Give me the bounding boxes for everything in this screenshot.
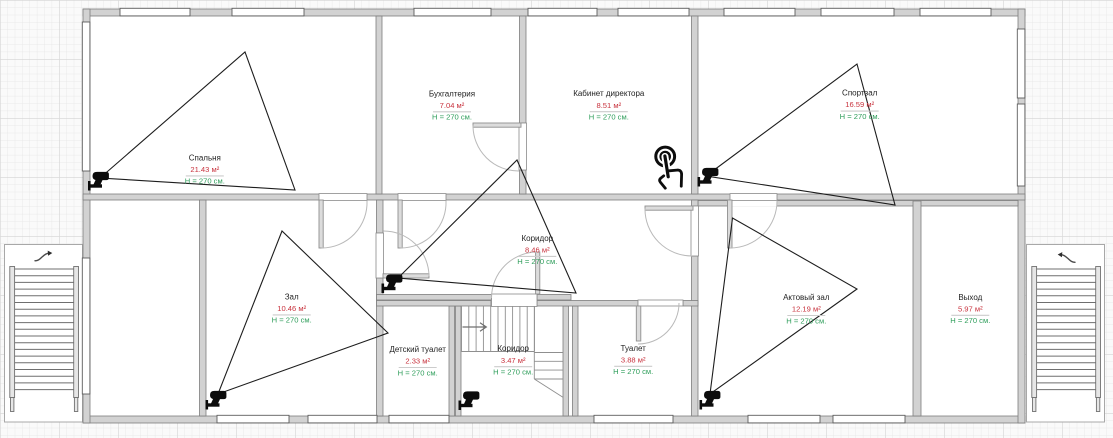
svg-text:10.46 м²: 10.46 м² (277, 304, 306, 313)
svg-text:Детский туалет: Детский туалет (389, 345, 446, 354)
svg-text:H = 270 см.: H = 270 см. (613, 367, 653, 376)
svg-text:5.97 м²: 5.97 м² (958, 304, 983, 313)
svg-text:16.59 м²: 16.59 м² (845, 100, 874, 109)
svg-text:3.88 м²: 3.88 м² (621, 355, 646, 364)
svg-text:H = 270 см.: H = 270 см. (840, 112, 880, 121)
svg-text:Спальня: Спальня (189, 153, 221, 162)
svg-text:Кабинет директора: Кабинет директора (573, 89, 645, 98)
svg-text:H = 270 см.: H = 270 см. (950, 316, 990, 325)
svg-text:Бухгалтерия: Бухгалтерия (429, 89, 475, 98)
svg-text:Коридор: Коридор (497, 344, 529, 353)
svg-text:H = 270 см.: H = 270 см. (432, 113, 472, 122)
svg-text:Спортзал: Спортзал (842, 89, 878, 98)
svg-text:H = 270 см.: H = 270 см. (589, 113, 629, 122)
svg-text:H = 270 см.: H = 270 см. (517, 257, 557, 266)
svg-text:Выход: Выход (958, 293, 982, 302)
svg-text:12.19 м²: 12.19 м² (792, 305, 821, 314)
svg-text:Зал: Зал (285, 292, 299, 301)
svg-text:H = 270 см.: H = 270 см. (786, 316, 826, 325)
svg-text:3.47 м²: 3.47 м² (501, 356, 526, 365)
svg-text:H = 270 см.: H = 270 см. (398, 368, 438, 377)
svg-text:8.46 м²: 8.46 м² (525, 246, 550, 255)
svg-text:21.43 м²: 21.43 м² (190, 165, 219, 174)
svg-text:H = 270 см.: H = 270 см. (493, 368, 533, 377)
svg-text:H = 270 см.: H = 270 см. (272, 316, 312, 325)
svg-text:H = 270 см.: H = 270 см. (185, 177, 225, 186)
svg-text:2.33 м²: 2.33 м² (405, 357, 430, 366)
svg-text:Туалет: Туалет (621, 344, 647, 353)
svg-text:7.04 м²: 7.04 м² (440, 101, 465, 110)
svg-text:8.51 м²: 8.51 м² (596, 101, 621, 110)
svg-text:Актовый зал: Актовый зал (783, 293, 830, 302)
svg-text:Коридор: Коридор (522, 234, 554, 243)
